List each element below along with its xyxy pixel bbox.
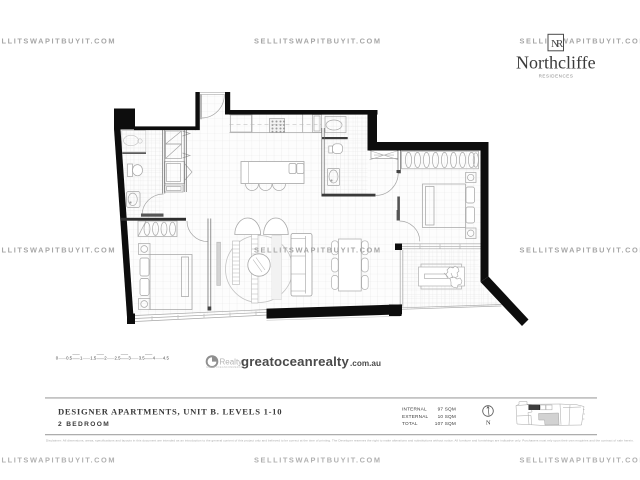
svg-text:N: N [486, 420, 491, 427]
svg-text:Disclaimer: All dimensions, ar: Disclaimer: All dimensions, areas, speci… [46, 439, 634, 443]
svg-text:SELLITSWAPITBUYIT.COM: SELLITSWAPITBUYIT.COM [254, 246, 382, 255]
svg-text:SELLITSWAPITBUYIT.COM: SELLITSWAPITBUYIT.COM [520, 37, 640, 46]
svg-text:2.5: 2.5 [115, 355, 122, 360]
svg-text:0.5: 0.5 [66, 355, 73, 360]
svg-text:greatoceanrealty: greatoceanrealty [241, 354, 349, 369]
svg-text:TOTAL: TOTAL [402, 421, 418, 426]
svg-text:EXTERNAL: EXTERNAL [402, 414, 429, 419]
svg-text:SELLITSWAPITBUYIT.COM: SELLITSWAPITBUYIT.COM [520, 246, 640, 255]
svg-text:107 SQM: 107 SQM [435, 421, 456, 426]
svg-text:INTERNAL: INTERNAL [402, 407, 427, 412]
svg-text:.com.au: .com.au [350, 359, 381, 368]
svg-text:2 BEDROOM: 2 BEDROOM [58, 421, 110, 428]
svg-text:RESIDENCES: RESIDENCES [539, 74, 574, 79]
svg-text:3.5: 3.5 [139, 355, 146, 360]
svg-text:SELLITSWAPITBUYIT.COM: SELLITSWAPITBUYIT.COM [0, 456, 116, 465]
svg-text:GREATOCEANCOMMERCE: GREATOCEANCOMMERCE [206, 366, 243, 369]
svg-text:1.5: 1.5 [90, 355, 97, 360]
svg-text:4.5: 4.5 [163, 355, 170, 360]
svg-text:SELLITSWAPITBUYIT.COM: SELLITSWAPITBUYIT.COM [520, 456, 640, 465]
svg-text:Northcliffe: Northcliffe [516, 53, 596, 73]
svg-text:SELLITSWAPITBUYIT.COM: SELLITSWAPITBUYIT.COM [254, 37, 382, 46]
svg-text:DESIGNER APARTMENTS, UNIT B. L: DESIGNER APARTMENTS, UNIT B. LEVELS 1-10 [58, 407, 282, 417]
svg-text:SELLITSWAPITBUYIT.COM: SELLITSWAPITBUYIT.COM [0, 246, 116, 255]
svg-text:10 SQM: 10 SQM [438, 414, 456, 419]
svg-text:97 SQM: 97 SQM [438, 407, 456, 412]
svg-text:SELLITSWAPITBUYIT.COM: SELLITSWAPITBUYIT.COM [0, 37, 116, 46]
svg-text:SELLITSWAPITBUYIT.COM: SELLITSWAPITBUYIT.COM [254, 456, 382, 465]
